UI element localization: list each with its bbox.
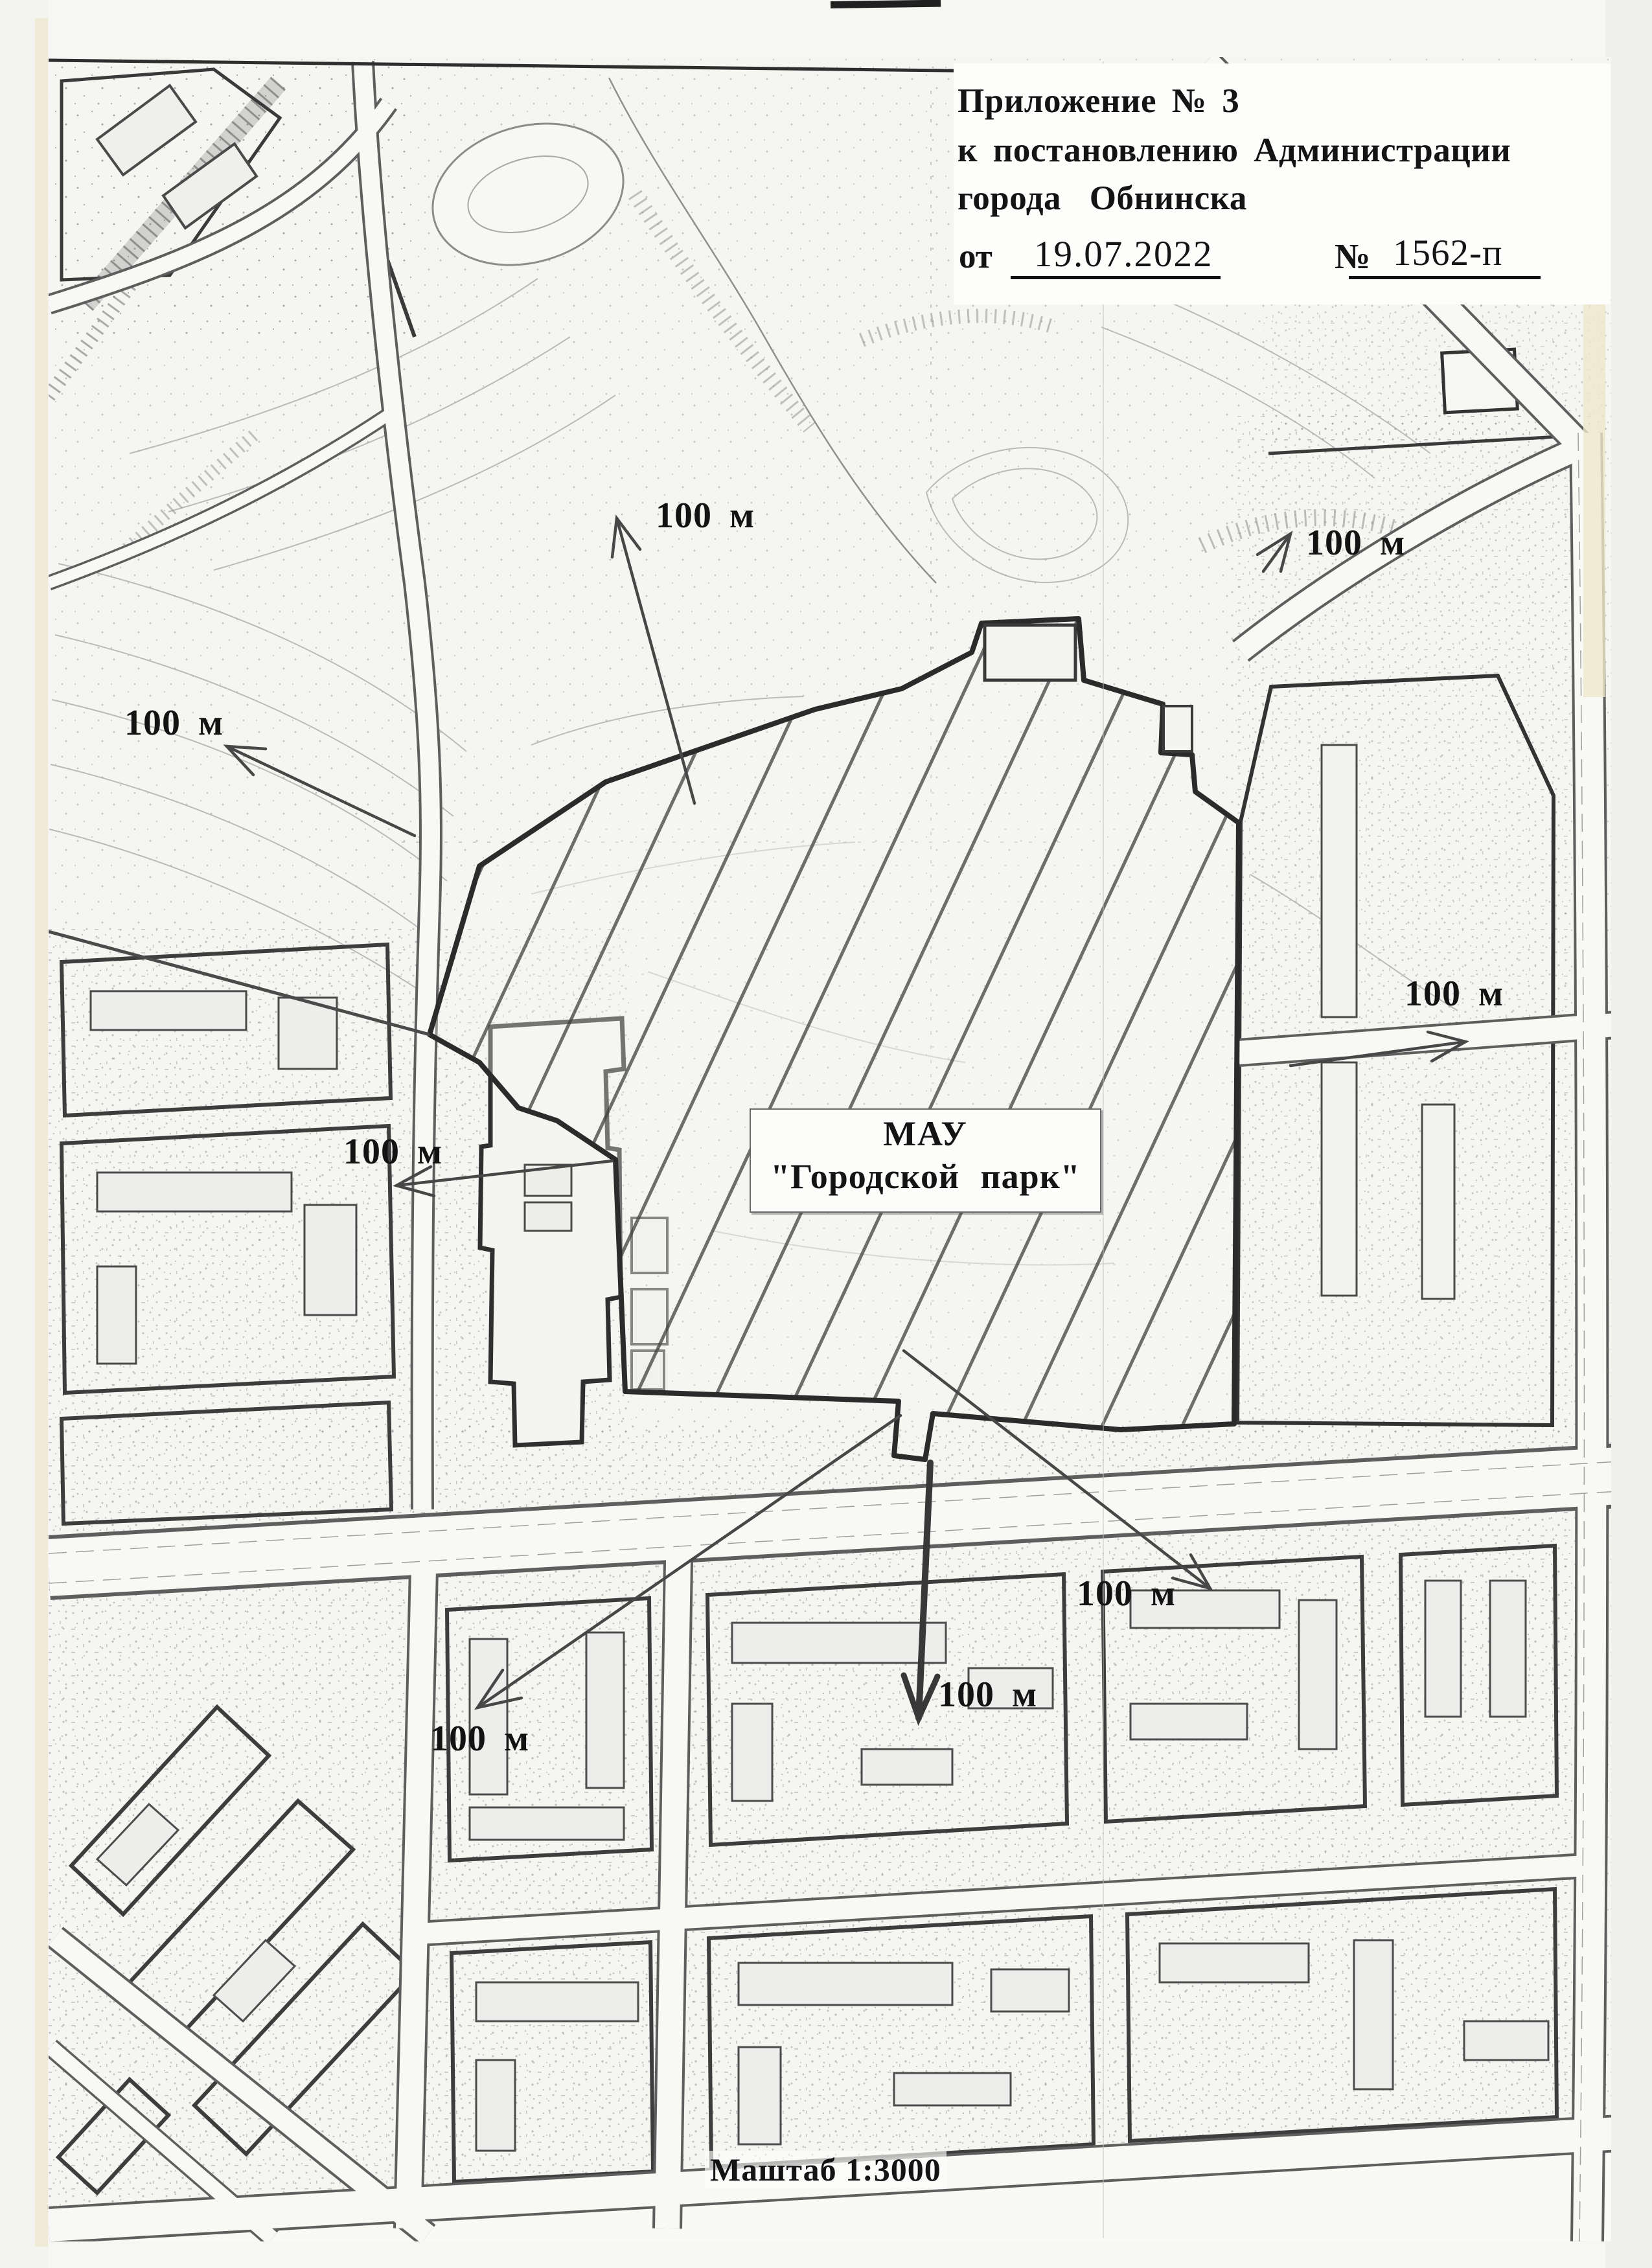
distance-label-south-west: 100 м [430,1718,529,1759]
header-date: 19.07.2022 [1034,233,1213,275]
header-from-label: от [959,237,992,276]
scanned-map-page: Приложение № 3 к постановлению Администр… [0,0,1652,2268]
header-subtitle: к постановлению Администрации [958,131,1511,170]
date-underline [1011,276,1221,279]
distance-label-south: 100 м [938,1674,1037,1715]
header-title: Приложение № 3 [958,82,1239,120]
distance-label-north: 100 м [656,495,755,536]
header-city: города Обнинска [958,179,1247,218]
scale-label: Маштаб 1:3000 [705,2151,946,2188]
header-number-value: 1562-п [1393,232,1503,274]
distance-label-mid-west: 100 м [343,1131,442,1173]
distance-label-west: 100 м [124,702,224,744]
distance-label-north-east: 100 м [1306,522,1405,564]
park-label-name: "Городской парк" [751,1156,1100,1197]
park-label-org: МАУ [751,1114,1100,1154]
number-underline [1349,276,1541,279]
excluded-building-2 [1164,706,1192,751]
header-number-sign: № [1335,236,1370,277]
distance-label-east: 100 м [1405,973,1504,1014]
distance-label-south-east: 100 м [1077,1573,1176,1614]
excluded-building [985,625,1075,680]
park-label-box: МАУ "Городской парк" [750,1108,1101,1213]
scan-edge-artifact-left [35,18,48,2247]
